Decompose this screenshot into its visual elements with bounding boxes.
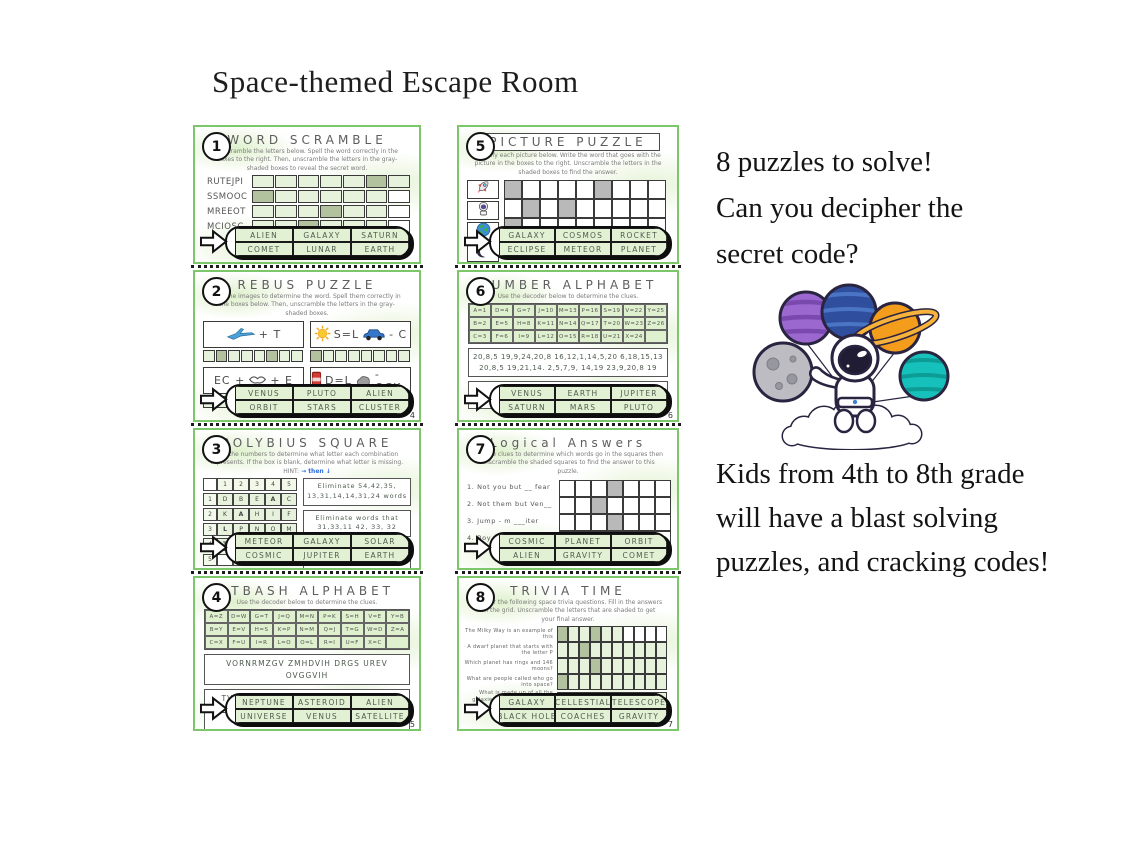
trivia-cells: [557, 674, 667, 690]
decoder-cell: E=5: [491, 317, 513, 330]
answer-bank-word: ORBIT: [235, 400, 293, 414]
letter-cell: [594, 199, 612, 218]
answer-bank-word: MARS: [555, 400, 611, 414]
answer-bank-word: PLUTO: [611, 400, 667, 414]
word-scramble-row: RUTEJPI: [207, 175, 411, 188]
answer-bank-word: EARTH: [351, 548, 409, 562]
letter-cell: [591, 514, 607, 531]
letter-cell: [373, 350, 385, 362]
decoder-cell: F=U: [228, 636, 251, 649]
decoder-cell: A=Z: [205, 610, 228, 623]
letter-cell: [656, 642, 667, 658]
trivia-question: A dwarf planet that starts with the lett…: [463, 644, 557, 657]
letter-cell: [655, 480, 671, 497]
answer-bank: GALAXYCELLESTIALTELESCOPEBLACK HOLECOACH…: [467, 693, 671, 725]
arrow-icon: [464, 535, 492, 564]
decoder-cell: K=11: [535, 317, 557, 330]
answer-bank-word: PLANET: [611, 242, 667, 256]
puzzle-card-3: 3POLYBIUS SQUAREUse the numbers to deter…: [193, 428, 421, 570]
marketing-line-4: Kids from 4th to 8th grade: [716, 458, 1024, 491]
card-instructions: Unscramble the letters below. Spell the …: [209, 148, 405, 173]
answer-bank-word: ORBIT: [611, 534, 667, 548]
decoder-cell: Q=J: [318, 623, 341, 636]
trivia-question: What are people called who go into space…: [463, 676, 557, 689]
letter-cell: [634, 658, 645, 674]
puzzle-card-7: 7Logical AnswersUse the clues to determi…: [457, 428, 679, 570]
letter-cell: [298, 190, 320, 203]
answer-bank-word: COMET: [611, 548, 667, 562]
decoder-cell: W=D: [364, 623, 387, 636]
decoder-cell: N=M: [296, 623, 319, 636]
polybius-header-cell: [203, 478, 217, 491]
letter-cell: [645, 674, 656, 690]
arrow-icon: [200, 696, 228, 725]
decoder-cell: O=L: [296, 636, 319, 649]
cipher-box: 20,8,5 19,9,24,20,8 16,12,1,14,5,20 6,18…: [468, 348, 668, 377]
letter-cell: [568, 658, 579, 674]
polybius-letter-cell: K: [217, 508, 233, 521]
scrambled-word: RUTEJPI: [207, 177, 252, 187]
card-instructions: Use the numbers to determine what letter…: [209, 451, 405, 476]
decoder-cell: A=1: [469, 304, 491, 317]
answer-bank-word: COSMIC: [499, 534, 555, 548]
rebus-cells: [203, 350, 304, 362]
letter-cell: [343, 175, 365, 188]
answer-bank-word: NEPTUNE: [235, 695, 293, 709]
arrow-icon: [200, 387, 228, 416]
rocket-icon: [476, 180, 491, 199]
picture-box: [467, 201, 499, 220]
decoder-cell: Z=26: [645, 317, 667, 330]
letter-cell: [559, 514, 575, 531]
letter-cell: [252, 175, 274, 188]
puzzle-card-8: 8TRIVIA TIMEAnswer the following space t…: [457, 576, 679, 731]
letter-cell: [623, 480, 639, 497]
letter-cell: [310, 350, 322, 362]
letter-cell: [576, 180, 594, 199]
trivia-row: The Milky Way is an example of this: [463, 626, 673, 642]
polybius-letter-cell: C: [281, 493, 297, 506]
word-scramble-row: SSMOOC: [207, 190, 411, 203]
answer-bank-word: METEOR: [235, 534, 293, 548]
decoder-cell: S=H: [341, 610, 364, 623]
letter-cell: [320, 205, 342, 218]
letter-cell: [568, 674, 579, 690]
decoder-cell: Y=B: [386, 610, 409, 623]
answer-bank-word: ALIEN: [235, 228, 293, 242]
decoder-cell: C=3: [469, 330, 491, 343]
answer-bank-word: ECLIPSE: [499, 242, 555, 256]
page-number: 5: [410, 720, 415, 729]
card-number-badge: 4: [202, 583, 231, 612]
answer-bank-word: SOLAR: [351, 534, 409, 548]
answer-bank-word: VENUS: [235, 386, 293, 400]
answer-bank-word: COSMOS: [555, 228, 611, 242]
sun-icon: [314, 325, 331, 345]
rebus-text: S=L: [334, 328, 359, 341]
card-number-badge: 6: [466, 277, 495, 306]
decoder-cell: L=12: [535, 330, 557, 343]
trivia-cells: [557, 642, 667, 658]
letter-cell: [203, 350, 215, 362]
letter-cell: [630, 199, 648, 218]
polybius-header-cell: 4: [265, 478, 281, 491]
answer-bank-word: BLACK HOLE: [499, 709, 555, 723]
polybius-letter-cell: A: [233, 508, 249, 521]
answer-bank-word: PLUTO: [293, 386, 351, 400]
letter-cell: [228, 350, 240, 362]
letter-cell: [361, 350, 373, 362]
answer-bank-word: SATURN: [351, 228, 409, 242]
cipher-line: 20,8,5 19,9,24,20,8 16,12,1,14,5,20 6,18…: [471, 352, 665, 363]
letter-cell: [590, 626, 601, 642]
answer-bank-word: EARTH: [351, 242, 409, 256]
letter-cell: [590, 674, 601, 690]
trivia-row: What are people called who go into space…: [463, 674, 673, 690]
letter-cell: [266, 350, 278, 362]
marketing-line-5: will have a blast solving: [716, 502, 998, 535]
decoder-cell: B=2: [469, 317, 491, 330]
picture-box: [467, 180, 499, 199]
letter-cell: [388, 175, 410, 188]
answer-bank-word: LUNAR: [293, 242, 351, 256]
letter-cell: [601, 626, 612, 642]
answer-bank-word: JUPITER: [293, 548, 351, 562]
answer-bank-word: COMET: [235, 242, 293, 256]
letter-cell: [601, 674, 612, 690]
rebus-clue: S=L- C: [310, 321, 411, 348]
trivia-question: Which planet has rings and 146 moons?: [463, 660, 557, 673]
trivia-cells: [557, 658, 667, 674]
decoder-cell: K=P: [273, 623, 296, 636]
rebus-text: - C: [389, 328, 407, 341]
card-number-badge: 3: [202, 435, 231, 464]
letter-cell: [557, 674, 568, 690]
page-number: 6: [668, 411, 673, 420]
letter-cell: [320, 190, 342, 203]
puzzle-card-5: 5PICTURE PUZZLEIdentify each picture bel…: [457, 125, 679, 264]
decoder-cell: I=R: [250, 636, 273, 649]
decoder-cell: W=23: [623, 317, 645, 330]
polybius-letter-cell: A: [265, 493, 281, 506]
letter-cell: [591, 497, 607, 514]
scrambled-word: SSMOOC: [207, 192, 252, 202]
polybius-letter-cell: D: [217, 493, 233, 506]
letter-cell: [623, 674, 634, 690]
letter-cell: [241, 350, 253, 362]
decoder-cell: M=13: [557, 304, 579, 317]
letter-cell: [575, 497, 591, 514]
decoder-cell: U=21: [601, 330, 623, 343]
puzzle-card-6: 6NUMBER ALPHABETUse the decoder below to…: [457, 270, 679, 422]
letter-cell: [366, 190, 388, 203]
page-number: 4: [410, 411, 415, 420]
letter-cell: [648, 199, 666, 218]
answer-bank-pill: ALIENGALAXYSATURNCOMETLUNAREARTH: [225, 226, 411, 258]
decoder-cell: R=18: [579, 330, 601, 343]
rebus-item: + T: [203, 321, 304, 362]
polybius-header-cell: 3: [249, 478, 265, 491]
polybius-header-cell: 2: [233, 478, 249, 491]
card-number-badge: 7: [466, 435, 495, 464]
arrow-icon: [464, 229, 492, 258]
polybius-row-label: 1: [203, 493, 217, 506]
letter-cell: [275, 190, 297, 203]
answer-bank-word: ASTEROID: [293, 695, 351, 709]
answer-bank-pill: VENUSPLUTOALIENORBITSTARSCLUSTER: [225, 384, 411, 416]
letter-cell: [216, 350, 228, 362]
letter-cell: [558, 199, 576, 218]
answer-bank-pill: COSMICPLANETORBITALIENGRAVITYCOMET: [489, 532, 669, 564]
answer-bank-word: GALAXY: [499, 228, 555, 242]
answer-bank-word: VENUS: [293, 709, 351, 723]
letter-cell: [568, 642, 579, 658]
answer-bank-word: GALAXY: [499, 695, 555, 709]
decoder-table: A=ZD=WG=TJ=QM=NP=KS=HV=EY=BB=YE=VH=SK=PN…: [204, 609, 410, 650]
letter-cell: [612, 642, 623, 658]
astronaut-illustration: [752, 282, 964, 454]
decoder-cell: [645, 330, 667, 343]
airplane-icon: [226, 326, 256, 344]
answer-bank-word: JUPITER: [611, 386, 667, 400]
answer-bank-pill: GALAXYCELLESTIALTELESCOPEBLACK HOLECOACH…: [489, 693, 669, 725]
answer-bank-word: GRAVITY: [555, 548, 611, 562]
letter-cell: [623, 626, 634, 642]
marketing-line-1: 8 puzzles to solve!: [716, 146, 933, 179]
decoder-cell: Q=17: [579, 317, 601, 330]
letter-cell: [623, 497, 639, 514]
letter-cell: [540, 180, 558, 199]
answer-bank: NEPTUNEASTEROIDALIENUNIVERSEVENUSSATELLI…: [203, 693, 413, 725]
trivia-question: The Milky Way is an example of this: [463, 628, 557, 641]
answer-bank-word: GALAXY: [293, 228, 351, 242]
arrow-icon: [200, 535, 228, 564]
letter-cell: [645, 642, 656, 658]
answer-bank-word: GALAXY: [293, 534, 351, 548]
decoder-cell: Y=25: [645, 304, 667, 317]
puzzle-card-1: 1WORD SCRAMBLEUnscramble the letters bel…: [193, 125, 421, 264]
cipher-line-box: VORNRMZGV ZMHDVIH DRGS UREV OVGGVIH: [204, 654, 410, 685]
letter-cell: [607, 480, 623, 497]
marketing-line-3: secret code?: [716, 238, 858, 271]
letter-cell: [655, 497, 671, 514]
card-number-badge: 1: [202, 132, 231, 161]
polybius-letter-cell: H: [249, 508, 265, 521]
card-instructions: Identify each picture below. Write the w…: [473, 152, 663, 177]
card-number-badge: 5: [466, 132, 495, 161]
letter-cell: [579, 626, 590, 642]
answer-bank-word: METEOR: [555, 242, 611, 256]
letter-cell: [575, 480, 591, 497]
answer-bank-word: ALIEN: [499, 548, 555, 562]
letter-cell: [601, 658, 612, 674]
letter-cell: [612, 674, 623, 690]
decoder-cell: D=W: [228, 610, 251, 623]
letter-cell: [634, 674, 645, 690]
polybius-header-cell: 1: [217, 478, 233, 491]
scrambled-word: MREEOT: [207, 207, 252, 217]
decoder-cell: G=7: [513, 304, 535, 317]
answer-bank: METEORGALAXYSOLARCOSMICJUPITEREARTH: [203, 532, 413, 564]
trivia-row: A dwarf planet that starts with the lett…: [463, 642, 673, 658]
answer-bank-pill: METEORGALAXYSOLARCOSMICJUPITEREARTH: [225, 532, 411, 564]
answer-bank: GALAXYCOSMOSROCKETECLIPSEMETEORPLANET: [467, 226, 671, 258]
letter-cell: [623, 642, 634, 658]
letter-cell: [630, 180, 648, 199]
letter-cell: [590, 642, 601, 658]
letter-cell: [623, 658, 634, 674]
card-number-badge: 2: [202, 277, 231, 306]
decoder-cell: N=14: [557, 317, 579, 330]
puzzle-card-2: 2REBUS PUZZLEUse the images to determine…: [193, 270, 421, 422]
letter-cell: [557, 626, 568, 642]
listing-image: Space-themed Escape Room 1WORD SCRAMBLEU…: [0, 0, 1140, 855]
letter-cell: [254, 350, 266, 362]
answer-bank: VENUSPLUTOALIENORBITSTARSCLUSTER: [203, 384, 413, 416]
letter-cell: [575, 514, 591, 531]
letter-cell: [639, 497, 655, 514]
letter-cell: [557, 658, 568, 674]
letter-cell: [522, 180, 540, 199]
decoder-cell: X=C: [364, 636, 387, 649]
polybius-clue: Eliminate 54,42,35, 13,31,14,14,31,24 wo…: [303, 478, 411, 506]
marketing-line-2: Can you decipher the: [716, 192, 963, 225]
rebus-item: S=L- C: [310, 321, 411, 362]
letter-cell: [656, 674, 667, 690]
decoder-cell: X=24: [623, 330, 645, 343]
letter-cell: [298, 175, 320, 188]
decoder-cell: V=22: [623, 304, 645, 317]
answer-bank-word: SATELLITE: [351, 709, 409, 723]
letter-cell: [634, 626, 645, 642]
answer-bank-word: CELLESTIAL: [555, 695, 611, 709]
decoder-cell: J=Q: [273, 610, 296, 623]
arrow-icon: [464, 696, 492, 725]
card-instructions: Use the images to determine the word. Sp…: [209, 293, 405, 318]
answer-bank: VENUSEARTHJUPITERSATURNMARSPLUTO: [467, 384, 671, 416]
answer-bank-pill: GALAXYCOSMOSROCKETECLIPSEMETEORPLANET: [489, 226, 669, 258]
answer-bank: ALIENGALAXYSATURNCOMETLUNAREARTH: [203, 226, 413, 258]
marketing-line-6: puzzles, and cracking codes!: [716, 546, 1049, 579]
letter-cell: [607, 514, 623, 531]
letter-cell: [639, 514, 655, 531]
letter-cell: [504, 180, 522, 199]
answer-bank-word: UNIVERSE: [235, 709, 293, 723]
decoder-cell: Z=A: [386, 623, 409, 636]
letter-cell: [540, 199, 558, 218]
astronaut-icon: [477, 201, 490, 220]
polybius-letter-cell: I: [265, 508, 281, 521]
letter-cell: [388, 205, 410, 218]
letter-cell: [388, 190, 410, 203]
rebus-text: + T: [259, 328, 281, 341]
polybius-letter-cell: E: [249, 493, 265, 506]
letter-cell: [612, 658, 623, 674]
letter-cell: [557, 642, 568, 658]
letter-cell: [252, 190, 274, 203]
decoder-cell: O=15: [557, 330, 579, 343]
letter-cell: [612, 199, 630, 218]
letter-cell: [398, 350, 410, 362]
letter-cell: [343, 190, 365, 203]
decoder-cell: D=4: [491, 304, 513, 317]
letter-cell: [275, 205, 297, 218]
letter-cell: [366, 205, 388, 218]
decoder-cell: S=19: [601, 304, 623, 317]
page-number: 7: [668, 720, 673, 729]
card-instructions: Use the clues to determine which words g…: [473, 451, 663, 476]
decoder-cell: L=O: [273, 636, 296, 649]
decoder-cell: C=X: [205, 636, 228, 649]
letter-cell: [559, 497, 575, 514]
letter-cell: [612, 180, 630, 199]
answer-bank-word: SATURN: [499, 400, 555, 414]
hint-arrows: → then ↓: [299, 468, 331, 475]
letter-cell: [366, 175, 388, 188]
decoder-cell: [386, 636, 409, 649]
letter-cell: [298, 205, 320, 218]
letter-cell: [279, 350, 291, 362]
answer-bank-word: EARTH: [555, 386, 611, 400]
answer-bank-word: STARS: [293, 400, 351, 414]
answer-bank-word: COSMIC: [235, 548, 293, 562]
answer-bank-word: VENUS: [499, 386, 555, 400]
letter-cell: [639, 480, 655, 497]
letter-cell: [504, 199, 522, 218]
letter-cell: [343, 205, 365, 218]
letter-cell: [386, 350, 398, 362]
letter-cell: [558, 180, 576, 199]
puzzle-column-2: 5PICTURE PUZZLEIdentify each picture bel…: [457, 125, 679, 731]
page-title: Space-themed Escape Room: [212, 64, 579, 100]
logical-clue: 2. Not them but Ven__: [467, 500, 555, 508]
decoder-cell: R=I: [318, 636, 341, 649]
answer-bank-pill: VENUSEARTHJUPITERSATURNMARSPLUTO: [489, 384, 669, 416]
rebus-cells: [310, 350, 411, 362]
letter-cell: [335, 350, 347, 362]
polybius-letter-cell: B: [233, 493, 249, 506]
letter-cell: [323, 350, 335, 362]
letter-cell: [559, 480, 575, 497]
letter-cell: [591, 480, 607, 497]
decoder-cell: I=9: [513, 330, 535, 343]
decoder-cell: T=G: [341, 623, 364, 636]
card-instructions: Use the decoder below to determine the c…: [209, 599, 405, 607]
polybius-letter-cell: F: [281, 508, 297, 521]
decoder-cell: H=8: [513, 317, 535, 330]
answer-bank-word: ALIEN: [351, 695, 409, 709]
letter-cell: [645, 658, 656, 674]
answer-bank-word: ALIEN: [351, 386, 409, 400]
letter-cell: [291, 350, 303, 362]
letter-cell: [648, 180, 666, 199]
trivia-cells: [557, 626, 667, 642]
letter-cell: [568, 626, 579, 642]
card-number-badge: 8: [466, 583, 495, 612]
word-scramble-row: MREEOT: [207, 205, 411, 218]
car-icon: [362, 326, 386, 344]
answer-bank-word: CLUSTER: [351, 400, 409, 414]
polybius-row-label: 2: [203, 508, 217, 521]
puzzle-card-4: 4ATBASH ALPHABETUse the decoder below to…: [193, 576, 421, 731]
logical-clue: 3. Jump - m ___iter: [467, 517, 555, 525]
decoder-cell: E=V: [228, 623, 251, 636]
decoder-cell: H=S: [250, 623, 273, 636]
cipher-line: 20,8,5 19,21,14. 2,5,7,9, 14,19 23,9,20,…: [471, 363, 665, 374]
logical-clue: 1. Not you but __ fear: [467, 483, 555, 491]
letter-cell: [576, 199, 594, 218]
decoder-cell: B=Y: [205, 623, 228, 636]
